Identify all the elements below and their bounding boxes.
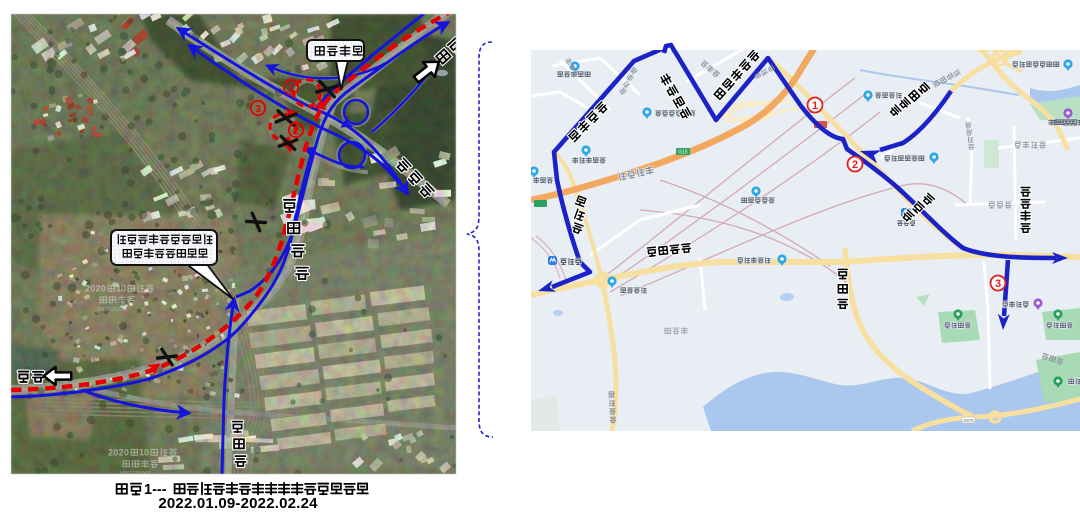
svg-text:1: 1 xyxy=(812,100,818,112)
svg-text:2: 2 xyxy=(852,159,858,171)
svg-text:10: 10 xyxy=(139,448,149,458)
svg-text:3: 3 xyxy=(255,103,261,115)
svg-text:3: 3 xyxy=(995,278,1001,290)
svg-text:2022.01.09-2022.02.24: 2022.01.09-2022.02.24 xyxy=(158,495,318,512)
svg-text:X875: X875 xyxy=(963,418,974,423)
svg-text:1: 1 xyxy=(288,82,294,94)
svg-text:2020: 2020 xyxy=(85,284,106,294)
svg-text:10: 10 xyxy=(116,284,126,294)
svg-text:2020: 2020 xyxy=(108,448,129,458)
svg-text:2: 2 xyxy=(293,125,299,137)
svg-text:XM(2020)048: XM(2020)048 xyxy=(97,307,128,313)
svg-text:G15: G15 xyxy=(678,150,688,156)
